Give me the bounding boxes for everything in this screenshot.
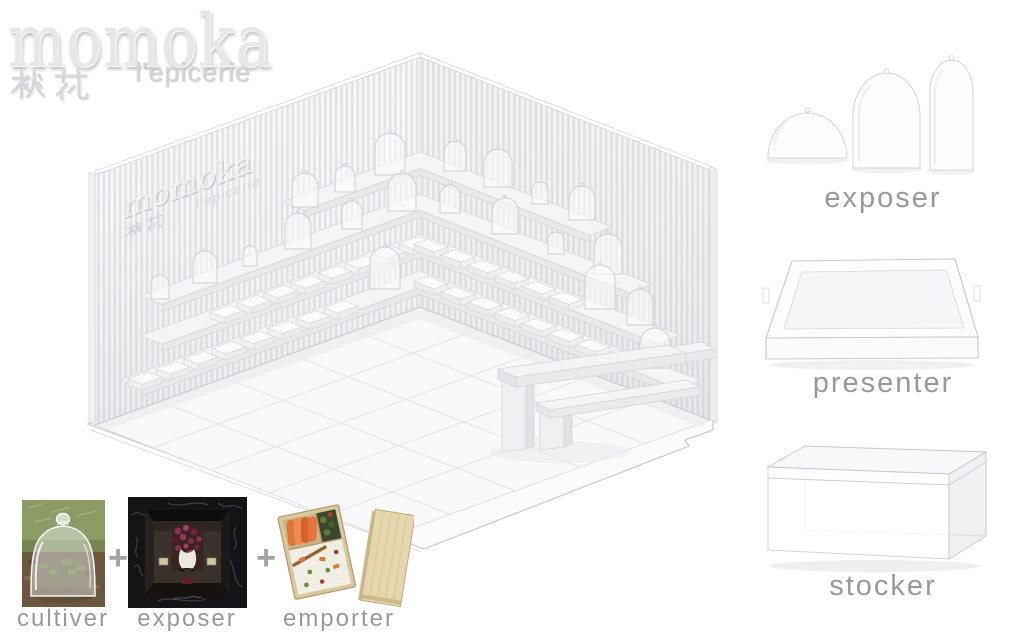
formula-label-exposer: exposer (127, 605, 247, 633)
header-logo: momoka (8, 5, 272, 65)
module-label-exposer: exposer (783, 182, 983, 215)
module-label-presenter: presenter (783, 367, 983, 400)
acrylic-tray-image (755, 248, 995, 373)
glass-domes-image (758, 50, 988, 180)
cloche-garden-photo (22, 500, 105, 607)
right-wall-end-cap (710, 166, 717, 423)
left-wall-end-cap (89, 172, 95, 425)
brand-kanji-icon (10, 64, 102, 104)
bento-box-photo (272, 498, 414, 608)
formula-label-cultiver: cultiver (3, 605, 123, 633)
brand-subtitle: l'epicerie (135, 57, 251, 88)
jewelry-display-photo (128, 497, 247, 608)
module-label-stocker: stocker (783, 570, 983, 603)
formula-label-emporter: emporter (269, 605, 409, 633)
concept-board: momoka momoka l'epicerie (0, 0, 1024, 638)
acrylic-box-image (755, 440, 1005, 575)
